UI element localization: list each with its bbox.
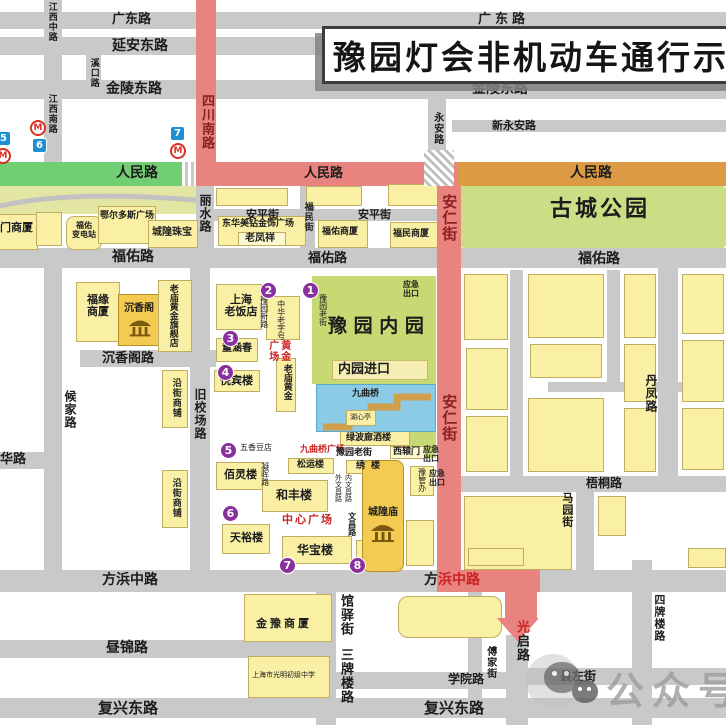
road-houjia [44,268,62,570]
road-sichuan-nan-route [196,0,216,186]
label-zhonghua-laozihao: 中华老字号 [276,300,285,340]
label-fumin-st: 福民街 [302,202,312,232]
building-generic [682,408,724,470]
title-banner: 豫园灯会非机动车通行示 [322,26,726,84]
jiuqu-bridge-label: 九曲桥 [352,390,379,400]
label-nei-wenchang: 内文昌路 [344,474,352,502]
label-yanan-dong: 延安东路 [112,39,168,54]
label-lvbolang: 绿波廊酒楼 [346,434,391,444]
label-jinyu-shangsha: 金豫商厦 [256,618,312,630]
label-yanjie-a: 沿街商铺 [170,378,180,418]
label-anren-n: 安仁街 [441,194,457,242]
building-generic [398,596,502,638]
label-jinling-w: 金陵东路 [106,82,162,97]
label-fumin-shangsha: 福民商厦 [393,230,429,240]
label-jinling-e: 金陵东路 [472,82,528,97]
neiyuan-entrance-label: 内园进口 [338,363,390,377]
label-emergency-exit-1: 应急 出口 [402,281,420,298]
route-turn-down [505,590,537,620]
metro-line-5-badge: 5 [0,131,11,146]
point-marker-7: 7 [279,557,296,574]
point-marker-6: 6 [222,505,239,522]
road-grid-v2 [607,270,620,390]
label-laofengxiang: 老凤祥 [245,234,275,245]
label-hua-rd: 华路 [0,453,26,467]
label-bailinglou: 佰灵楼 [224,469,257,481]
label-substation: 福佑 变电站 [70,222,98,239]
road-renmin-green [0,162,200,186]
label-xin-yongan: 新永安路 [492,120,536,132]
label-guanyi: 馆驿街 [338,594,352,636]
label-guangqi-red: 光 [514,620,529,634]
building-generic [468,548,524,566]
label-huangjin-plaza-a: 黄金 [278,340,289,362]
label-renmin-e: 人民路 [570,166,612,181]
label-lishui: 丽水路 [198,194,211,233]
label-fangbin-e: 方浜中路 [424,573,480,588]
label-fangbin-e-red: 浜中路 [438,572,480,588]
label-laomiao-flagship: 老庙黄金旗舰店 [167,284,177,347]
label-huabaolou: 华宝楼 [297,544,333,557]
label-fuyou-w: 福佑路 [112,250,154,265]
label-fuyuan-shangsha: 福缘 商厦 [86,294,110,318]
label-chenghuangmiao: 城隍庙 [368,508,398,519]
label-ninghui: 凝晖路 [260,462,269,486]
road-mayuan [576,492,594,570]
label-xiyuanmen: 西辕门 [393,448,420,458]
label-donghua-meizuan: 东华美钻金饰广场 [222,220,294,230]
label-renmin-c: 人民路 [304,167,343,181]
road-danfeng [658,268,678,476]
label-houjia: 候家路 [63,390,76,429]
label-yanjie-b: 沿街商铺 [170,478,180,518]
building-generic [624,274,656,338]
map-canvas: 古城公园 豫 园 内 园 内园进口 九曲桥 湖心亭 [0,0,726,725]
map-title: 豫园灯会非机动车通行示 [325,31,726,79]
point-marker-2: 2 [260,282,277,299]
label-guangqi-black: 启路 [514,634,529,662]
building-generic [406,520,434,566]
label-center-plaza: 中心广场 [282,514,334,526]
label-jiuxiaochang: 旧校场路 [193,388,206,440]
building-generic [528,274,604,338]
metro-line-6-badge: 6 [32,138,47,153]
label-guangming-school: 上海市光明初级中学 [252,672,315,680]
wechat-icon-small [572,680,598,703]
label-men-shangsha: 门商厦 [0,222,33,234]
metro-logo-icon: M [30,120,46,136]
label-eerduosi: 鄂尔多斯广场 [100,212,154,222]
label-jiangxi-nan: 江西南路 [46,94,56,134]
label-chenghuang-zhubao: 城隍珠宝 [152,228,192,239]
label-huangjin-plaza-b: 广场 [266,340,277,362]
road-grid-h1 [548,382,688,392]
building-generic [464,274,508,340]
building-generic [36,212,62,246]
label-emergency-exit-3: 应急 出口 [428,470,446,487]
label-jiangxi-zhong: 江西中路 [46,2,56,42]
metro-line-7-badge: 7 [170,126,185,141]
label-wenchang: 文昌路 [347,512,356,536]
metro-logo-icon: M [170,143,186,159]
label-yuyuan-lao-south: 豫园老街 [336,449,372,459]
label-sanpailou: 三牌楼路 [338,648,352,704]
label-tianyulou: 天裕楼 [230,532,263,544]
label-fuxing-e: 复兴东路 [424,700,484,716]
label-guangqi: 光启路 [514,620,528,662]
label-guangdong-e: 广东路 [478,13,529,27]
label-songyunlou: 松运楼 [297,461,324,471]
point-marker-3: 3 [222,330,239,347]
road-anren-route [437,186,461,592]
label-anren-s: 安仁街 [441,394,457,442]
building-generic [216,188,288,206]
building-generic [624,408,656,472]
building-generic [528,398,604,472]
label-yuyuan-xin-st: 豫园新路 [259,296,268,328]
label-hefenglou: 和丰楼 [276,489,312,502]
crosswalk-sichuan [182,162,196,186]
label-chenxiangge-rd: 沉香阁路 [102,352,154,366]
label-xikou: 溪口路 [88,58,98,88]
point-marker-4: 4 [217,364,234,381]
building-generic [688,548,726,568]
temple-icon [368,522,398,544]
label-sichuan-nan: 四川南路 [199,94,213,150]
label-fangbin-w: 方浜中路 [102,573,158,588]
building-generic [466,416,508,472]
building-generic [682,340,724,402]
gucheng-park-label: 古城公园 [550,198,650,222]
label-fuyou-e: 福佑路 [578,252,620,267]
huxinting-label: 湖心亭 [350,414,371,422]
point-marker-5: 5 [220,442,237,459]
label-fuyou-shangsha: 福佑商厦 [322,228,358,238]
building-generic [306,186,362,206]
crosswalk-yongan [424,150,454,186]
label-renmin-w: 人民路 [116,166,158,181]
temple-icon [126,318,154,338]
label-fangbin-e-black: 方 [424,572,438,588]
label-laomiao-huangjin: 老庙黄金 [281,364,291,400]
point-marker-1: 1 [302,282,319,299]
yuyuan-neiyuan-label: 豫 园 内 园 [328,316,424,337]
label-xueyuan: 学院路 [448,673,484,686]
label-anping-e: 安平街 [358,209,391,221]
label-wutong: 梧桐路 [586,477,622,490]
label-fuxing-w: 复兴东路 [98,700,158,716]
label-anping-w: 安平街 [246,209,279,221]
point-marker-8: 8 [349,557,366,574]
watermark-label: 公众号 [606,660,726,715]
label-sipailou: 四牌楼路 [653,594,665,642]
label-wuxiangdou: 五香豆店 [240,444,272,453]
label-mayuan: 马园街 [561,492,573,528]
label-fujia: 傅家街 [484,646,495,679]
building-generic [466,348,508,410]
watermark-dot: · [710,666,720,701]
label-chenxiangge: 沉香阁 [124,304,154,315]
building-generic [598,496,626,536]
label-yuyuan-lao-st: 豫园老街 [318,294,327,326]
label-wai-wenchang: 外文昌路 [334,474,342,502]
label-emergency-exit-2: 应急 出口 [422,446,440,463]
label-guangdong-w: 广东路 [112,13,151,27]
label-yuguanban: 豫管办 [417,468,426,492]
label-xiulou: 绣楼 [356,462,386,472]
label-zhoujin: 昼锦路 [106,641,148,656]
building-generic [530,344,602,378]
label-yongan: 永安路 [431,112,442,145]
building-generic [682,274,724,334]
road-grid-v1 [510,270,523,476]
label-laofandian: 上海 老饭店 [224,294,258,318]
building-generic [388,184,438,206]
label-danfeng: 丹凤路 [644,374,657,413]
label-fuyou-c: 福佑路 [308,252,347,266]
